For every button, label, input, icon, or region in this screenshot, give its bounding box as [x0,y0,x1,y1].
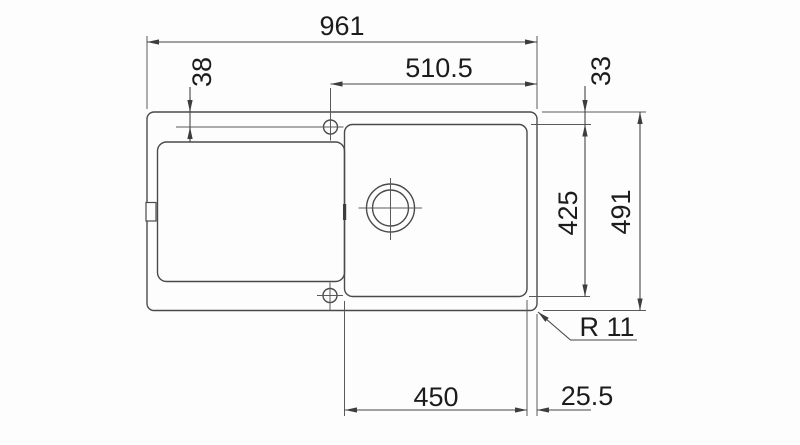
callout-corner-radius: R 11 [538,312,637,342]
dim-top-to-faucet-center: 38 [187,57,217,142]
sink-geometry [146,88,537,311]
leader-arrow [538,312,571,340]
dim-label-faucet-to-right-edge: 510.5 [405,53,473,83]
dim-label-top-to-bowl: 33 [586,56,616,86]
dim-faucet-to-right-edge: 510.5 [331,53,538,84]
drain-hole [359,178,423,240]
dim-label-bowl-width: 450 [413,382,458,412]
dim-label-bowl-to-right-edge: 25.5 [561,381,614,411]
bowl-wall-mark [343,204,346,220]
bowl-outline [345,125,528,297]
faucet-hole-top [176,88,344,141]
left-edge-tab [146,203,156,222]
drawing-svg: 961 510.5 38 33 425 491 R 11 [0,0,800,445]
dim-label-top-to-faucet-center: 38 [187,57,217,87]
dim-overall-depth: 491 [606,112,640,311]
dim-label-bowl-front-to-back: 425 [553,190,583,235]
dim-bowl-width: 450 [345,300,528,416]
dim-label-corner-radius: R 11 [579,312,634,342]
faucet-hole-bottom [317,283,343,311]
drainboard-outline [158,142,345,282]
sink-dimension-drawing: 961 510.5 38 33 425 491 R 11 [0,0,800,445]
dim-bowl-front-to-back: 425 [553,125,585,297]
dim-top-to-bowl: 33 [585,56,616,125]
dim-label-overall-depth: 491 [606,189,636,234]
dim-label-overall-width: 961 [319,11,364,41]
